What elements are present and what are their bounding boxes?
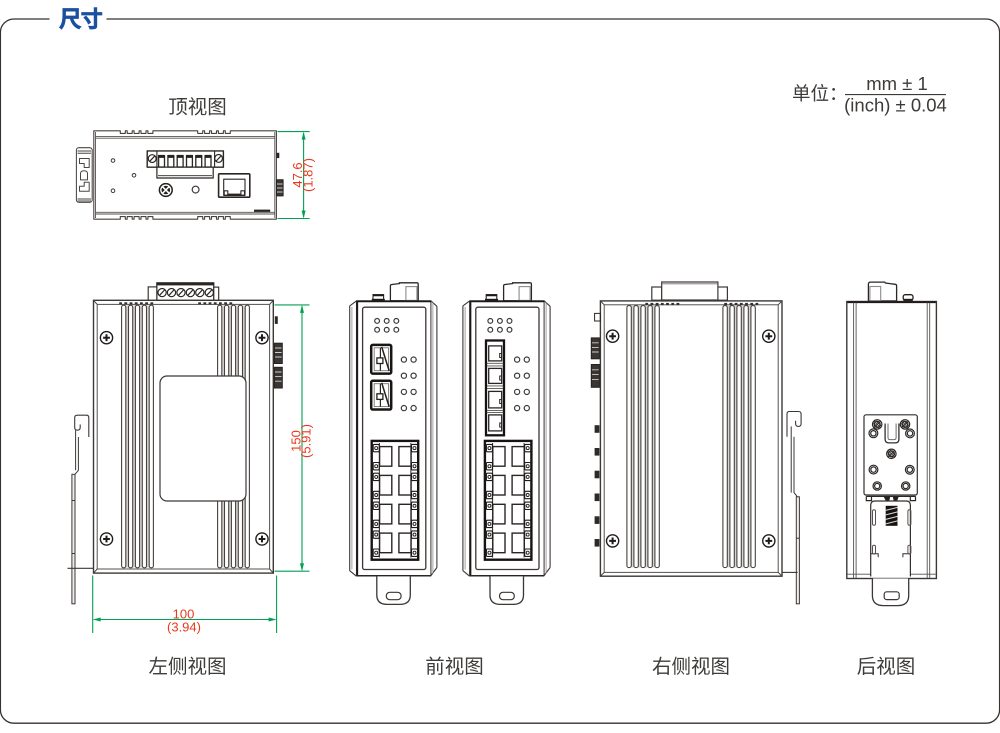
svg-text:(3.94): (3.94): [167, 620, 201, 635]
svg-text:前视图: 前视图: [425, 656, 484, 678]
svg-text:右侧视图: 右侧视图: [652, 656, 730, 678]
svg-text:顶视图: 顶视图: [168, 97, 227, 119]
svg-text:后视图: 后视图: [857, 656, 916, 678]
svg-text:尺寸: 尺寸: [60, 7, 103, 31]
svg-text:单位：: 单位：: [792, 83, 848, 104]
svg-text:(5.91): (5.91): [299, 424, 314, 458]
svg-text:(inch) ± 0.04: (inch) ± 0.04: [844, 95, 947, 116]
svg-text:(1.87): (1.87): [301, 158, 316, 192]
svg-text:左侧视图: 左侧视图: [148, 656, 226, 678]
svg-text:mm ± 1: mm ± 1: [866, 73, 928, 94]
